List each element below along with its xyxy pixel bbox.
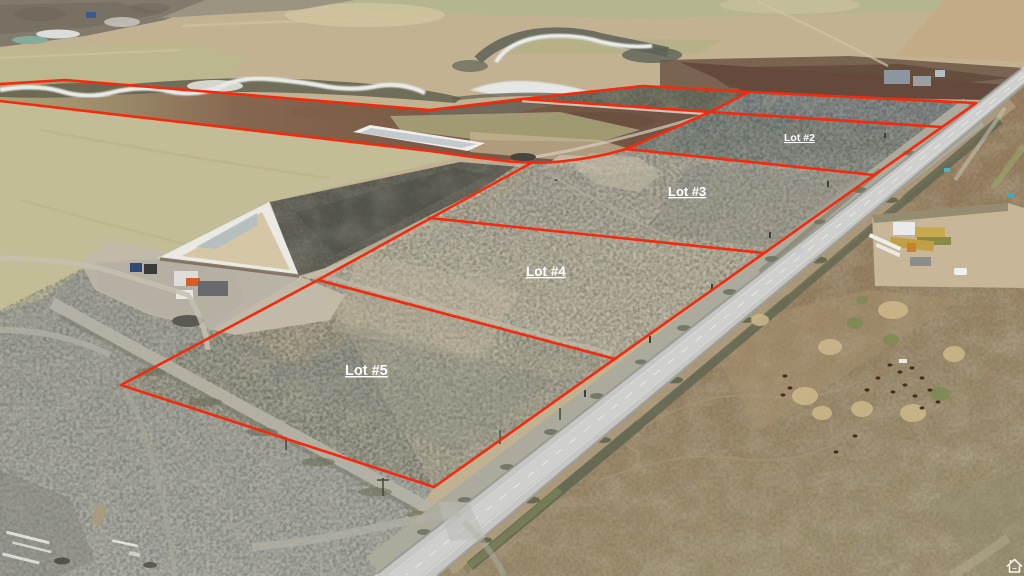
svg-text:Lot #2: Lot #2 [784,132,815,144]
svg-text:Lot #4: Lot #4 [526,264,566,279]
svg-text:Lot #5: Lot #5 [345,363,388,379]
svg-text:Lot #3: Lot #3 [668,184,706,199]
